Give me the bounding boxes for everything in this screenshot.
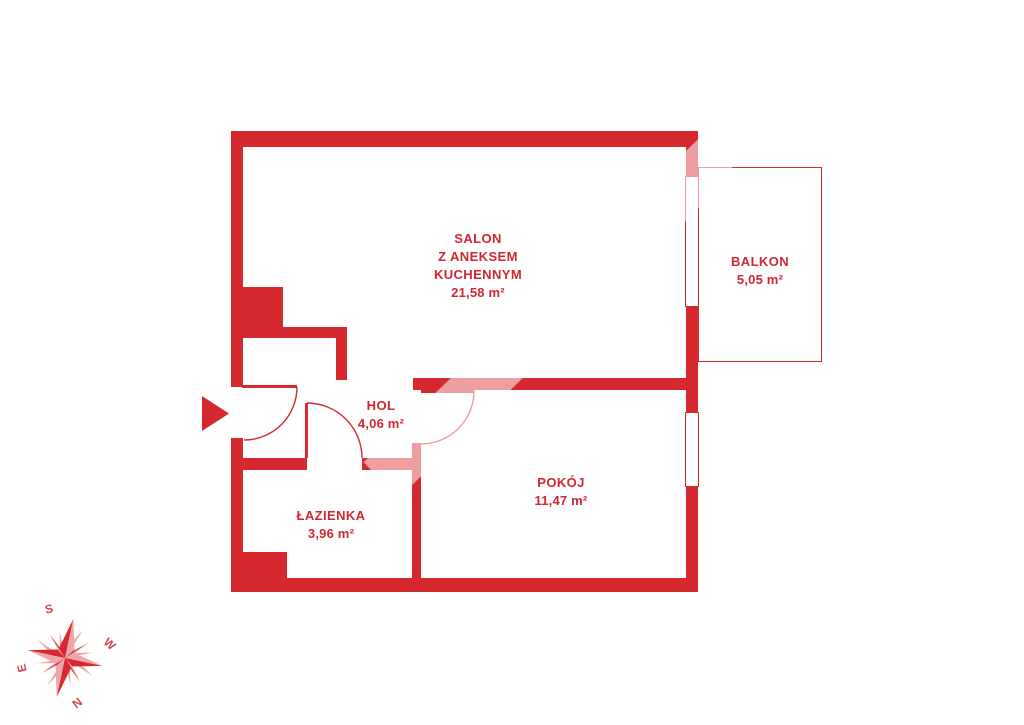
salon-label: SALON Z ANEKSEM KUCHENNYM 21,58 m² [434, 230, 522, 302]
balkon-area: 5,05 m² [731, 271, 789, 289]
wall-right-middle [686, 307, 698, 412]
salon-name-line3: KUCHENNYM [434, 266, 522, 284]
kitchen-wall-horizontal [242, 327, 347, 338]
bathroom-wall-left-segment [242, 458, 307, 470]
lazienka-name: ŁAZIENKA [297, 507, 366, 525]
balkon-label: BALKON 5,05 m² [731, 253, 789, 289]
wall-salon-pokoj-divider [413, 378, 686, 390]
bottom-left-pillar [231, 552, 287, 578]
bathroom-door-arc [307, 403, 362, 458]
salon-window [685, 176, 699, 307]
balkon-name: BALKON [731, 253, 789, 271]
compass-rose: S W N E [15, 590, 125, 720]
wall-left-upper [231, 131, 243, 387]
entrance-door-arc [244, 387, 297, 440]
hol-name: HOL [358, 397, 404, 415]
pokoj-door-arc [421, 391, 474, 444]
wall-top [231, 131, 698, 147]
doors-overlay [0, 0, 1024, 725]
entrance-arrow-icon [202, 396, 229, 431]
wall-right-lower [686, 487, 698, 578]
wall-right-upper [686, 147, 698, 176]
pokoj-window [685, 412, 699, 487]
floorplan-canvas: SALON Z ANEKSEM KUCHENNYM 21,58 m² BALKO… [0, 0, 1024, 725]
lazienka-label: ŁAZIENKA 3,96 m² [297, 507, 366, 543]
pokoj-area: 11,47 m² [535, 492, 588, 510]
salon-name-line1: SALON [434, 230, 522, 248]
pokoj-label: POKÓJ 11,47 m² [535, 474, 588, 510]
kitchen-wall-vertical [336, 338, 347, 380]
kitchen-shaft-pillar [231, 287, 283, 327]
hol-area: 4,06 m² [358, 415, 404, 433]
hol-label: HOL 4,06 m² [358, 397, 404, 433]
wall-bottom [231, 578, 698, 592]
pokoj-name: POKÓJ [535, 474, 588, 492]
lazienka-area: 3,96 m² [297, 525, 366, 543]
bathroom-wall-right-segment [362, 458, 421, 470]
salon-area: 21,58 m² [434, 284, 522, 302]
salon-name-line2: Z ANEKSEM [434, 248, 522, 266]
